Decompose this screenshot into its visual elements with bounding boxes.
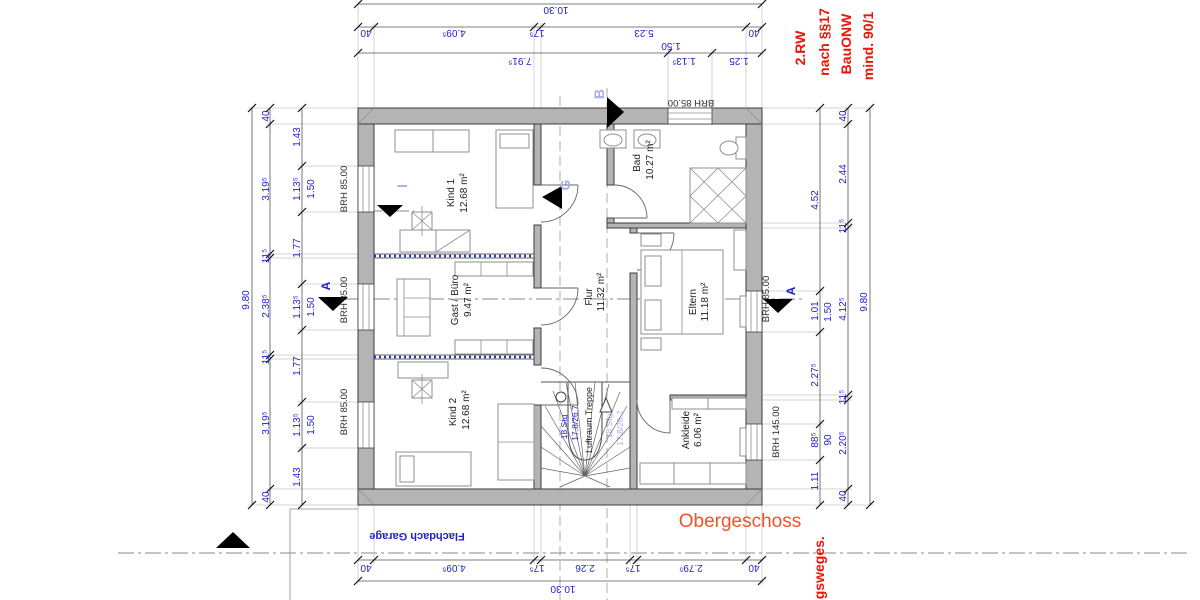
room-area-gast: 9.47 m² <box>463 282 474 317</box>
rescue-note-line4: mind. 90/1 <box>860 12 876 81</box>
dim-right-window: 90 <box>823 434 834 446</box>
dim-bottom: 40 <box>748 562 760 573</box>
dim-top: 17⁵ <box>529 27 544 38</box>
window-kind1 <box>358 166 374 212</box>
door-ankleide <box>637 400 670 433</box>
dim-left: 40 <box>261 110 272 122</box>
dim-bottom: 40 <box>360 562 372 573</box>
dim-right: 2.20⁵ <box>838 431 849 455</box>
dim-top: 5.23 <box>634 27 654 38</box>
room-name-gast: Gast / Büro <box>450 274 461 325</box>
room-name-bad: Bad <box>632 154 643 172</box>
sill-label-top: BRH 85.00 <box>668 97 714 108</box>
wall-flur-right-1 <box>630 228 637 233</box>
room-name-kind2: Kind 2 <box>448 397 459 426</box>
window-sill-eltern <box>740 296 746 327</box>
dim-top-inner: 7.91⁵ <box>508 55 532 66</box>
dim-right-outer: 1.01 <box>810 301 821 321</box>
room-area-kind2: 12.68 m² <box>461 390 472 430</box>
rescue-note-line1: 2.RW <box>792 30 808 66</box>
dim-right-outer: 4.52 <box>810 190 821 210</box>
escape-route-note: ngsweges. <box>811 536 827 600</box>
garage-label: Flachdach Garage <box>369 530 464 542</box>
wall-flur-left-1 <box>534 124 541 185</box>
dim-right: 2.44 <box>838 164 849 184</box>
window-sill-ankleide <box>740 428 746 456</box>
dim-left-total: 9.80 <box>241 290 252 310</box>
dim-right-window: 1.50 <box>823 302 834 322</box>
dim-right-total: 9.80 <box>859 292 870 312</box>
dim-bottom-total: 10.30 <box>550 583 575 594</box>
room-area-flur: 11.32 m² <box>596 272 607 311</box>
dim-left: 40 <box>261 491 272 503</box>
dim-right-outer: 88⁵ <box>810 432 821 447</box>
sill-label: BRH 85.00 <box>761 276 772 322</box>
rescue-note-line3: BauONW <box>838 13 854 74</box>
room-area-ankleide: 6.06 m² <box>693 412 704 447</box>
window-eltern <box>746 291 762 332</box>
dim-top-inner: 1.13⁵ <box>672 55 696 66</box>
floor-plan-drawing: 10.30 40 4.09⁵ 17⁵ 5.23 40 7.91⁵ 1.13⁵ 1… <box>0 0 1200 600</box>
room-area-bad: 10.27 m² <box>645 140 656 180</box>
rescue-note-line2: nach §§17 <box>816 8 832 76</box>
marker-g: G <box>557 179 573 190</box>
dim-bottom: 2.26 <box>575 562 595 573</box>
wall-flur-left-4 <box>534 405 541 489</box>
plan-canvas: 10.30 40 4.09⁵ 17⁵ 5.23 40 7.91⁵ 1.13⁵ 1… <box>0 0 1200 600</box>
room-name-ankleide: Ankleide <box>681 410 692 449</box>
dim-right: 40 <box>838 490 849 502</box>
section-arrow-bottom <box>216 532 250 548</box>
dim-top: 40 <box>748 27 760 38</box>
room-name-treppe: Luftraum Treppe <box>584 387 594 453</box>
window-ankleide <box>746 424 762 460</box>
dim-bottom: 2.79⁵ <box>679 562 703 573</box>
room-name-eltern: Eltern <box>688 289 699 315</box>
dim-top: 40 <box>360 27 372 38</box>
room-area-eltern: 11.18 m² <box>700 282 711 321</box>
dim-left-inner: 1.77 <box>292 238 303 258</box>
wall-bottom <box>358 489 762 505</box>
dimensions-top: 10.30 40 4.09⁵ 17⁵ 5.23 40 7.91⁵ 1.13⁵ 1… <box>360 4 760 66</box>
door-bad <box>614 185 647 218</box>
stair-rise-run-ghost: 17.8/26.7 <box>615 410 625 446</box>
floor-title: Obergeschoss <box>679 511 802 532</box>
dim-left: 3.19⁵ <box>261 411 272 435</box>
dim-left-inner: 1.13⁵ <box>292 295 303 319</box>
wall-flur-left-2 <box>534 225 541 288</box>
marker-a-left: A <box>319 281 333 290</box>
dim-left: 3.19⁵ <box>261 177 272 201</box>
wall-flur-right-2 <box>630 273 637 489</box>
marker-b: B <box>591 89 607 99</box>
window-kind2 <box>358 402 374 448</box>
dim-left: 2.38⁵ <box>261 294 272 318</box>
dim-right: 11⁵ <box>838 390 849 405</box>
dim-top-total: 10.30 <box>543 4 568 15</box>
dim-left-inner: 1.77 <box>292 356 303 376</box>
marker-i: I <box>394 184 410 188</box>
sill-label: BRH 85.00 <box>339 389 350 435</box>
window-gast <box>358 284 374 330</box>
dim-left: 11⁵ <box>261 249 272 264</box>
dim-bottom: 17⁵ <box>625 562 640 573</box>
stair-rise-run: 17.8/26.7 <box>570 405 580 441</box>
dim-left-inner: 1.43 <box>292 127 303 147</box>
dim-left-inner: 1.13⁵ <box>292 177 303 201</box>
dim-left-window: 1.50 <box>306 297 317 317</box>
dim-right-outer: 2.27⁵ <box>810 363 821 387</box>
garage-outline <box>290 509 358 600</box>
dim-top-window: 1.50 <box>661 40 681 51</box>
wall-bad-eltern <box>607 223 746 228</box>
dim-bottom: 4.09⁵ <box>442 562 466 573</box>
sill-label: BRH 85.00 <box>339 166 350 212</box>
door-gast <box>541 288 578 325</box>
stair-count: 18 Stg <box>559 414 569 439</box>
dim-left-window: 1.50 <box>306 415 317 435</box>
room-area-kind1: 12.68 m² <box>459 173 470 213</box>
dim-right: 11⁵ <box>838 219 849 234</box>
dim-left-inner: 1.43 <box>292 467 303 487</box>
stair-count-ghost: 18 Stg <box>604 413 614 438</box>
dim-right: 40 <box>838 110 849 122</box>
dim-right: 4.12⁵ <box>838 297 849 321</box>
room-name-flur: Flur <box>584 288 595 306</box>
dim-right-outer: 1.11 <box>810 471 821 490</box>
dim-left-window: 1.50 <box>306 179 317 199</box>
marker-a-right: A <box>784 286 798 295</box>
stair-post <box>556 392 566 402</box>
dim-left: 11⁵ <box>261 350 272 365</box>
dim-top: 4.09⁵ <box>442 27 466 38</box>
sill-label: BRH 145.00 <box>771 406 782 458</box>
wall-flur-left-3 <box>534 328 541 365</box>
dim-bottom: 17⁵ <box>529 562 544 573</box>
wall-bad-left-2 <box>607 218 614 223</box>
window-bad <box>668 108 712 124</box>
dim-left-inner: 1.13⁵ <box>292 413 303 437</box>
room-name-kind1: Kind 1 <box>446 178 457 207</box>
sill-label: BRH 85.00 <box>339 277 350 323</box>
dim-top-inner: 1.25 <box>729 55 749 66</box>
